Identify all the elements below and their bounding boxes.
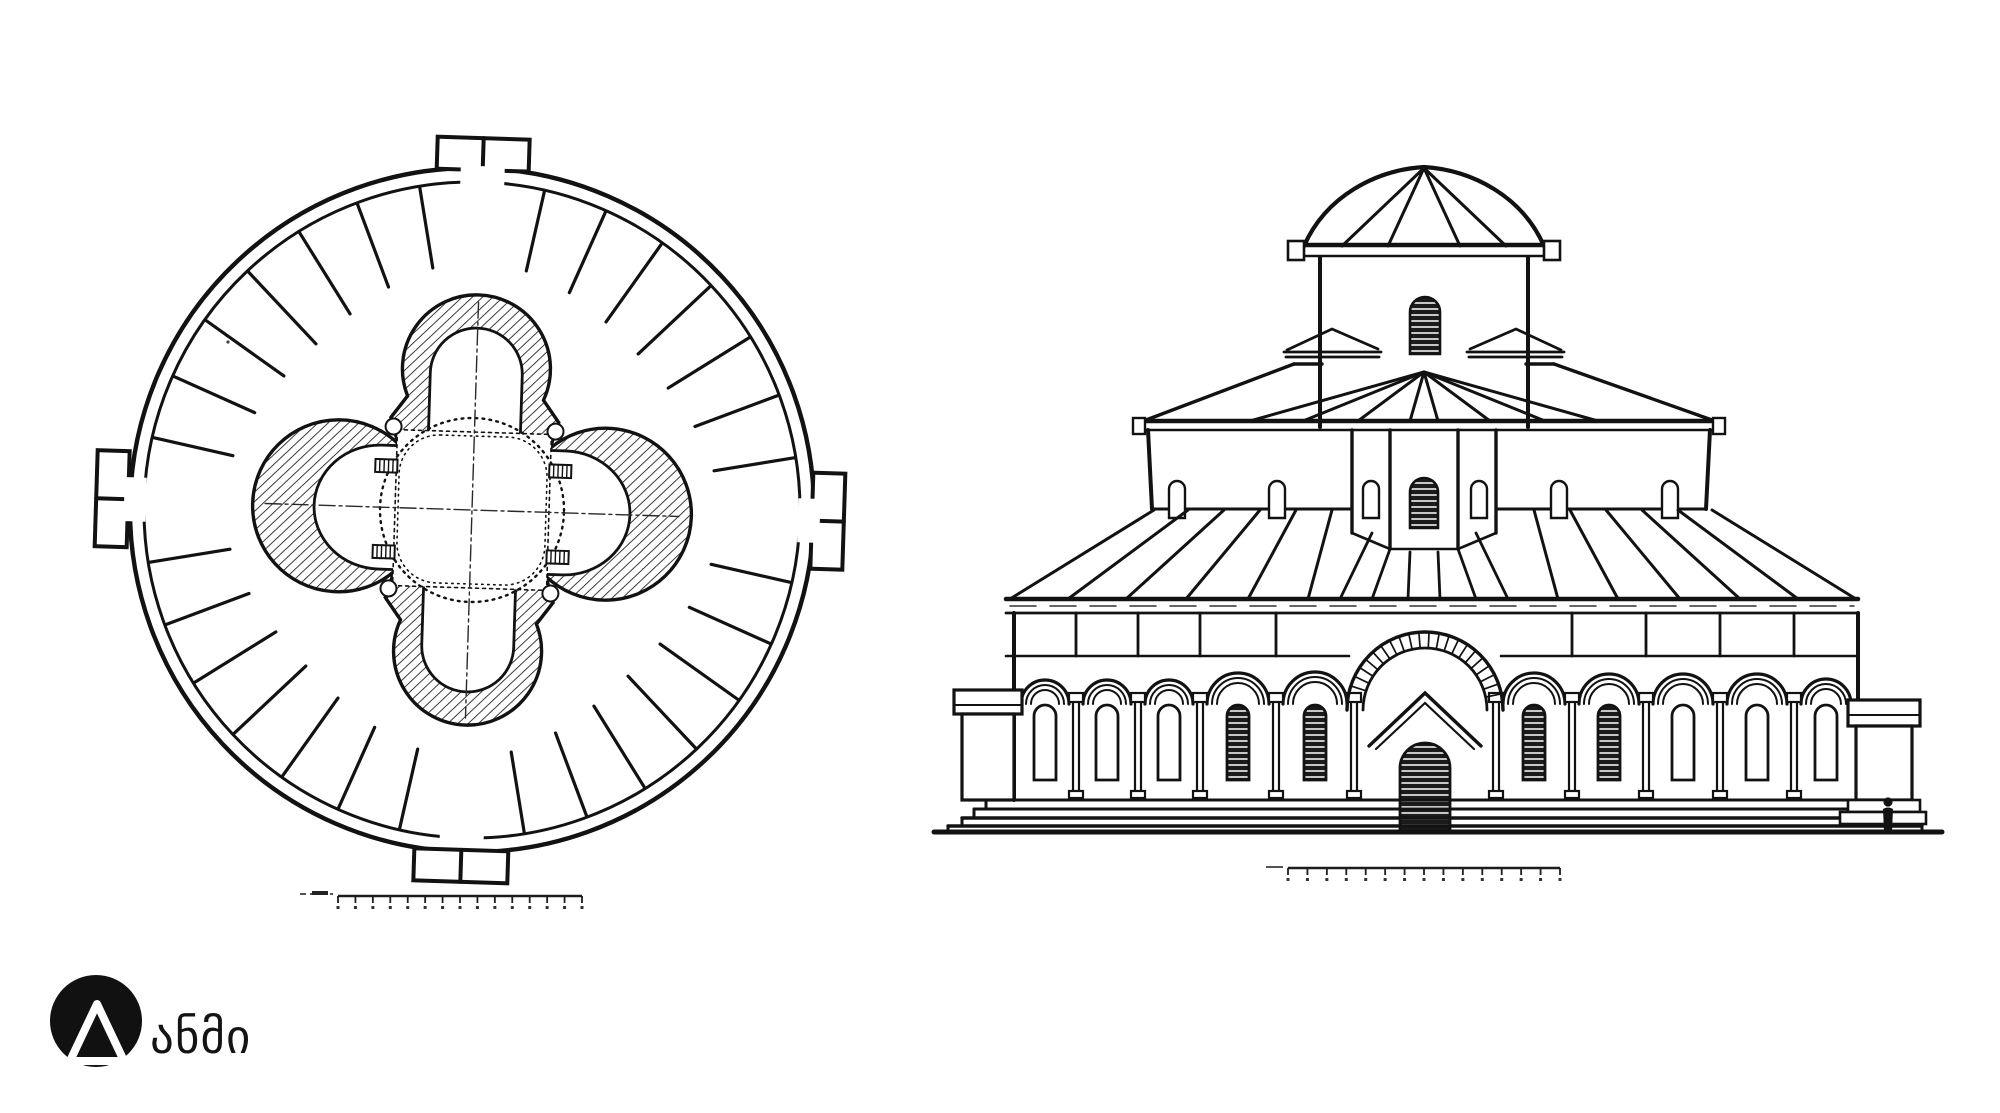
human-figure: [1883, 797, 1893, 832]
dome-outline: [1304, 167, 1544, 246]
paper-speck: [226, 340, 229, 343]
scanned-architectural-sheet: ანმი: [0, 0, 2000, 1113]
portal-gable: [1369, 693, 1481, 746]
left-pylon: [954, 690, 1022, 800]
elevation-drawing: [934, 167, 1942, 833]
right-hip: [1554, 364, 1712, 420]
drum-window: [1410, 297, 1440, 354]
umbrella-roof-ribs: [1250, 372, 1598, 421]
drawing-sheet-svg: ანმი: [0, 0, 2000, 1113]
core-interior: [308, 323, 635, 697]
central-bay: [393, 430, 552, 591]
cupola: [1284, 167, 1564, 427]
apse-window: [1410, 478, 1438, 528]
elevation-scale-bar: [1266, 867, 1562, 881]
upper-tier: [1133, 364, 1725, 549]
right-pylon: [1840, 700, 1926, 824]
portal: [1347, 632, 1503, 833]
floor-plan-drawing: [85, 126, 856, 893]
logo-text: ანმი: [150, 1010, 251, 1065]
left-hip: [1146, 364, 1294, 420]
logo-circle: [50, 975, 142, 1067]
logo: ანმი: [50, 975, 251, 1067]
plan-scale-bar: [300, 891, 584, 909]
